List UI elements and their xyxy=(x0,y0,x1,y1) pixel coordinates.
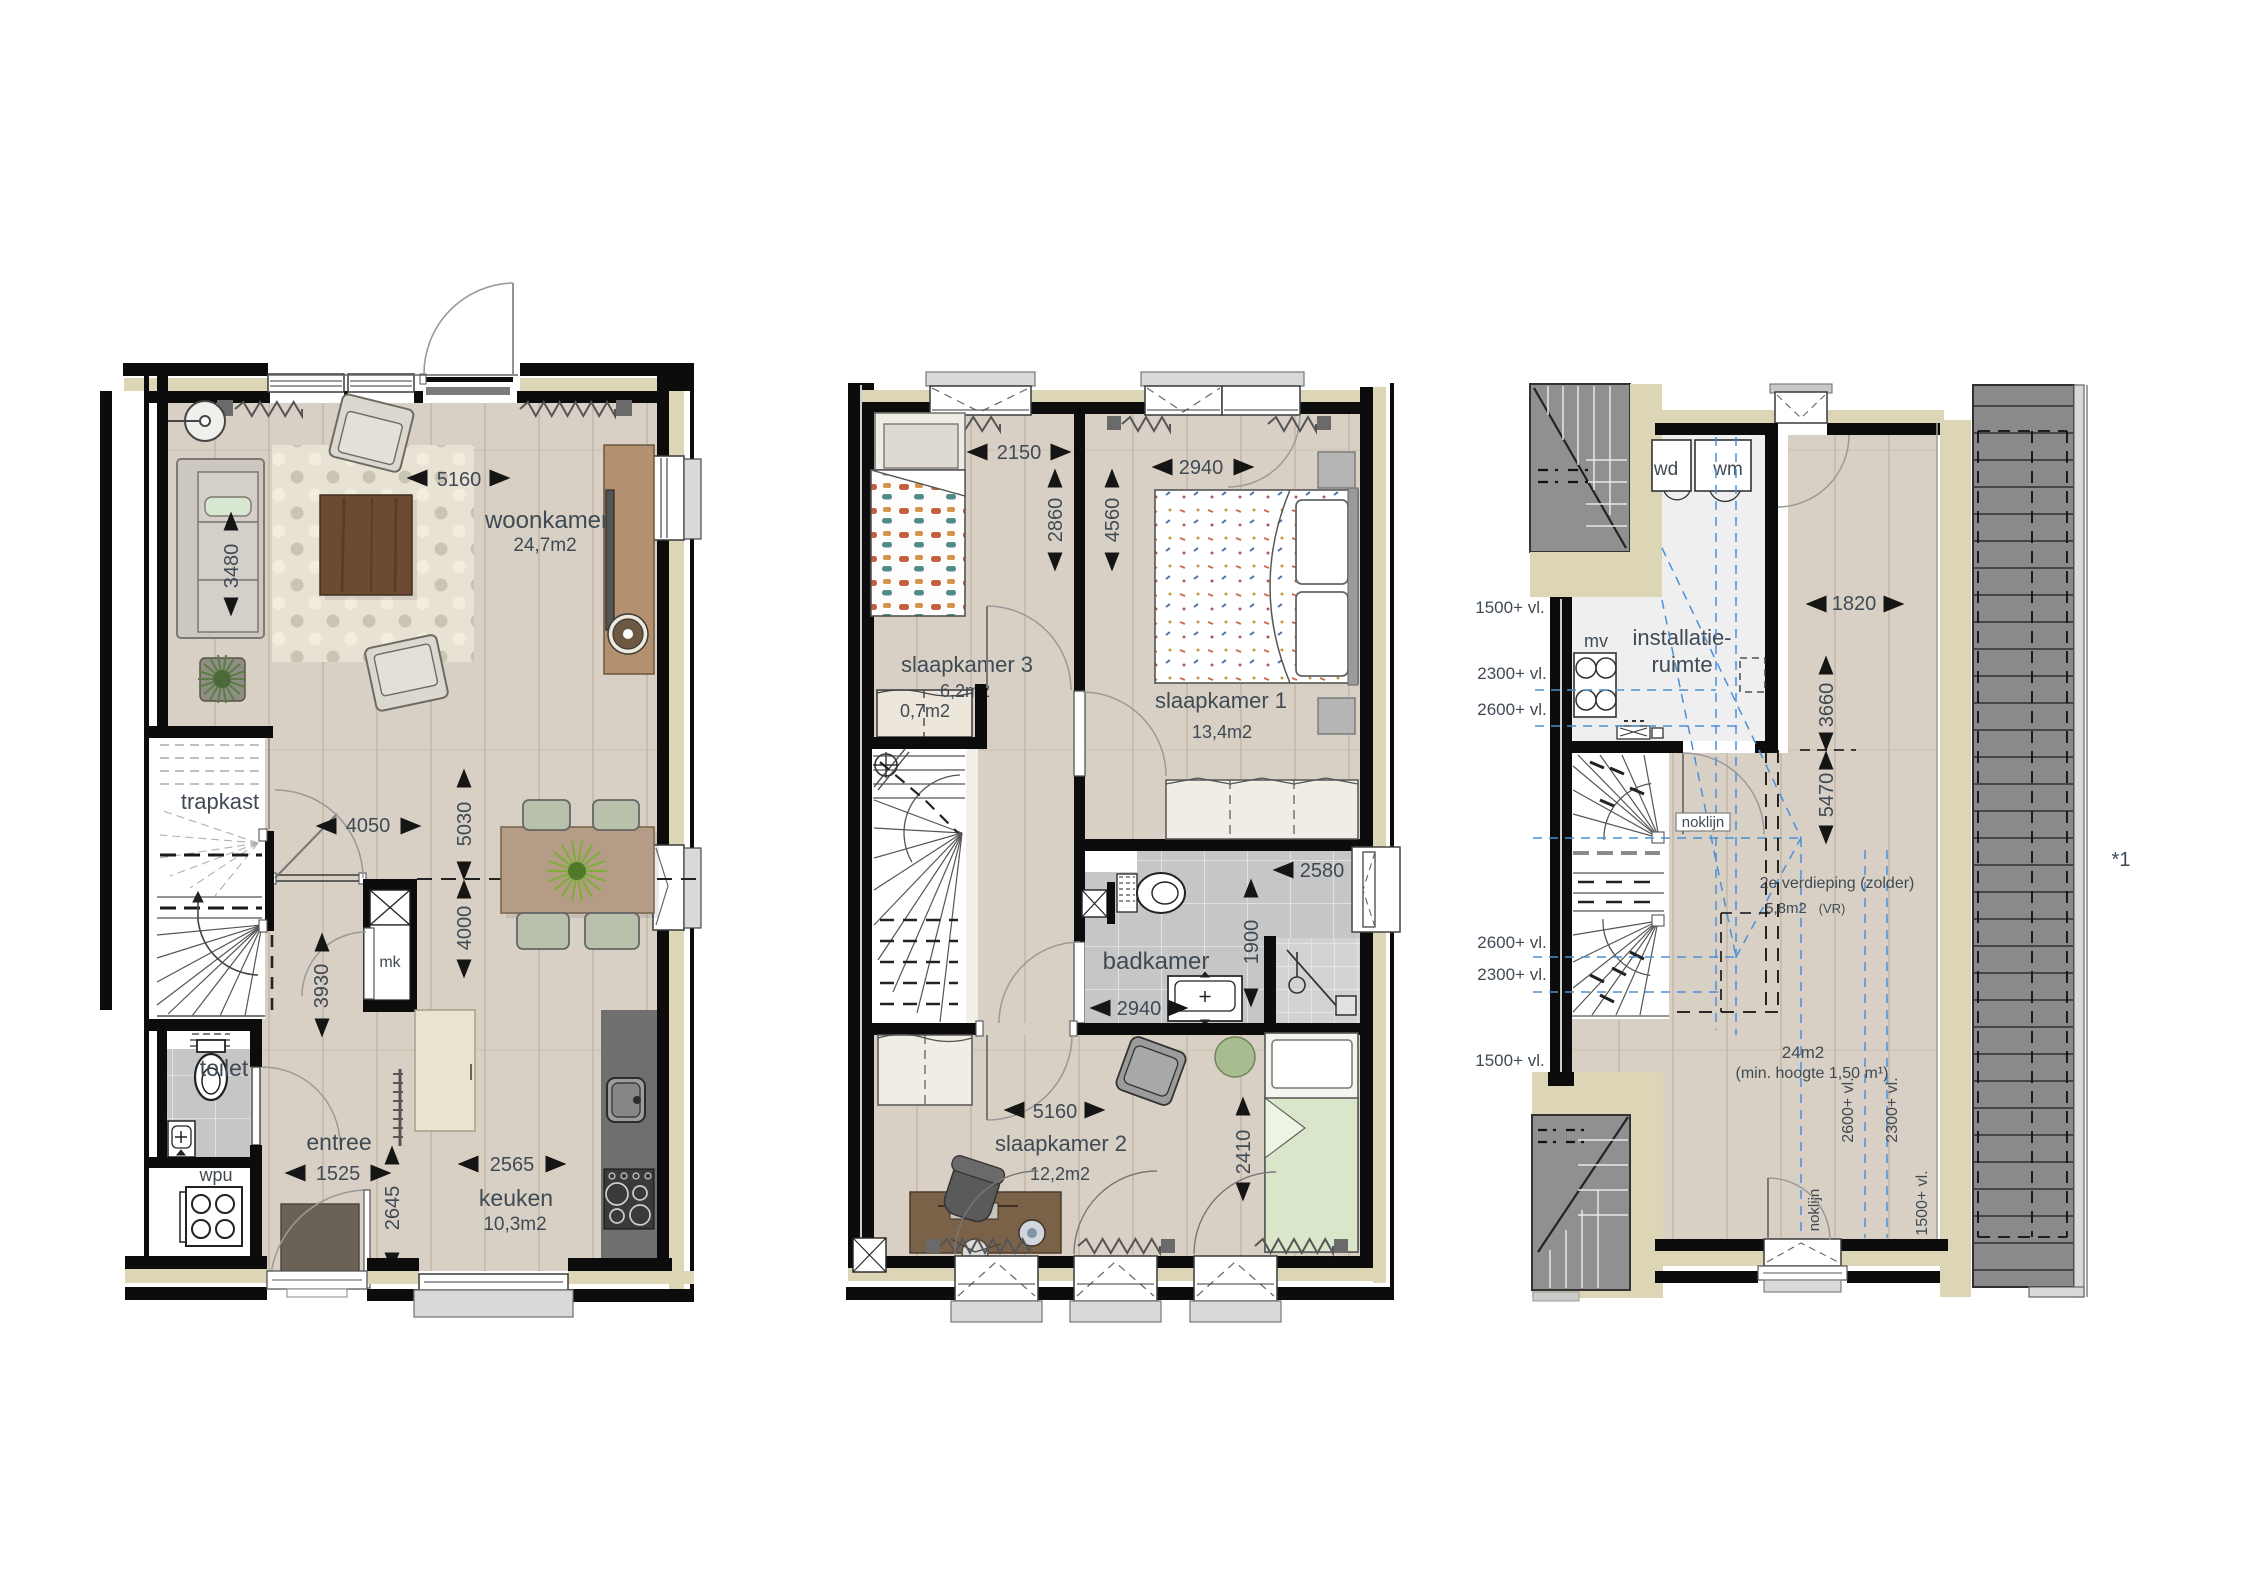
svg-text:2150: 2150 xyxy=(997,442,1042,464)
svg-text:3660: 3660 xyxy=(1816,683,1838,728)
svg-text:ruimte: ruimte xyxy=(1651,652,1712,677)
svg-text:5470: 5470 xyxy=(1816,773,1838,818)
svg-text:2e verdieping (zolder): 2e verdieping (zolder) xyxy=(1760,875,1915,892)
svg-text:4560: 4560 xyxy=(1102,498,1124,543)
svg-text:4000: 4000 xyxy=(454,906,476,951)
svg-text:0,7m2: 0,7m2 xyxy=(900,701,950,721)
svg-text:trapkast: trapkast xyxy=(181,789,259,814)
svg-text:5,8m2: 5,8m2 xyxy=(1765,900,1807,917)
svg-text:slaapkamer 1: slaapkamer 1 xyxy=(1155,688,1287,713)
svg-text:1500+ vl.: 1500+ vl. xyxy=(1914,1170,1931,1235)
svg-text:1500+ vl.: 1500+ vl. xyxy=(1475,1051,1544,1070)
svg-text:13,4m2: 13,4m2 xyxy=(1192,722,1252,742)
svg-text:5160: 5160 xyxy=(1033,1101,1078,1123)
svg-text:2940: 2940 xyxy=(1117,998,1162,1020)
svg-text:badkamer: badkamer xyxy=(1103,948,1210,975)
svg-text:wpu: wpu xyxy=(198,1165,232,1185)
svg-text:keuken: keuken xyxy=(479,1185,553,1211)
svg-text:2600+ vl.: 2600+ vl. xyxy=(1477,700,1546,719)
svg-text:3480: 3480 xyxy=(221,544,243,589)
svg-text:2565: 2565 xyxy=(490,1154,535,1176)
svg-text:2300+ vl.: 2300+ vl. xyxy=(1477,965,1546,984)
svg-text:5160: 5160 xyxy=(437,469,482,491)
svg-text:slaapkamer 3: slaapkamer 3 xyxy=(901,652,1033,677)
svg-text:wd: wd xyxy=(1653,459,1678,480)
svg-text:(min. hoogte 1,50 m¹): (min. hoogte 1,50 m¹) xyxy=(1736,1065,1889,1082)
svg-text:toilet: toilet xyxy=(200,1055,249,1081)
svg-text:slaapkamer 2: slaapkamer 2 xyxy=(995,1131,1127,1156)
svg-text:2645: 2645 xyxy=(382,1186,404,1231)
svg-text:entree: entree xyxy=(306,1129,371,1155)
svg-text:3930: 3930 xyxy=(311,964,333,1009)
svg-text:woonkamer: woonkamer xyxy=(484,507,609,534)
svg-text:2300+ vl.: 2300+ vl. xyxy=(1884,1077,1901,1142)
svg-text:2410: 2410 xyxy=(1233,1130,1255,1175)
svg-text:2860: 2860 xyxy=(1045,498,1067,543)
svg-text:1500+ vl.: 1500+ vl. xyxy=(1475,598,1544,617)
svg-text:12,2m2: 12,2m2 xyxy=(1030,1164,1090,1184)
svg-text:5030: 5030 xyxy=(454,802,476,847)
svg-text:2600+ vl.: 2600+ vl. xyxy=(1840,1077,1857,1142)
svg-text:24,7m2: 24,7m2 xyxy=(513,535,576,556)
svg-text:24m2: 24m2 xyxy=(1782,1043,1825,1062)
svg-text:1820: 1820 xyxy=(1832,593,1877,615)
svg-text:1900: 1900 xyxy=(1241,920,1263,965)
svg-text:*1: *1 xyxy=(2112,849,2131,871)
svg-text:2940: 2940 xyxy=(1179,457,1224,479)
svg-text:mk: mk xyxy=(379,954,401,971)
svg-text:2580: 2580 xyxy=(1300,860,1345,882)
svg-text:noklijn: noklijn xyxy=(1682,814,1725,831)
svg-text:10,3m2: 10,3m2 xyxy=(483,1214,546,1235)
svg-text:2300+ vl.: 2300+ vl. xyxy=(1477,664,1546,683)
svg-text:4050: 4050 xyxy=(346,815,391,837)
svg-text:mv: mv xyxy=(1584,631,1608,651)
svg-text:(VR): (VR) xyxy=(1819,901,1846,916)
svg-text:noklijn: noklijn xyxy=(1806,1189,1823,1232)
svg-text:2600+ vl.: 2600+ vl. xyxy=(1477,933,1546,952)
svg-text:1525: 1525 xyxy=(316,1163,361,1185)
svg-text:wm: wm xyxy=(1712,459,1743,480)
